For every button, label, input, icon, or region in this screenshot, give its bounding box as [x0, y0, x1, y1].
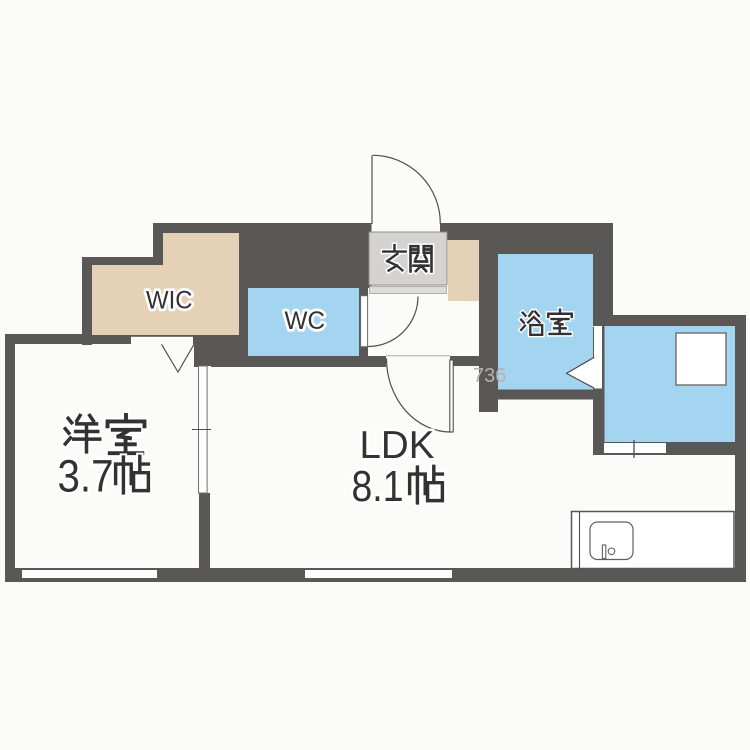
- svg-text:736: 736: [473, 365, 506, 387]
- svg-text:LDK: LDK: [360, 424, 435, 467]
- svg-text:3.7: 3.7: [58, 451, 114, 502]
- svg-text:WIC: WIC: [146, 287, 193, 315]
- svg-text:8.1: 8.1: [352, 462, 404, 511]
- svg-text:WC: WC: [285, 307, 326, 335]
